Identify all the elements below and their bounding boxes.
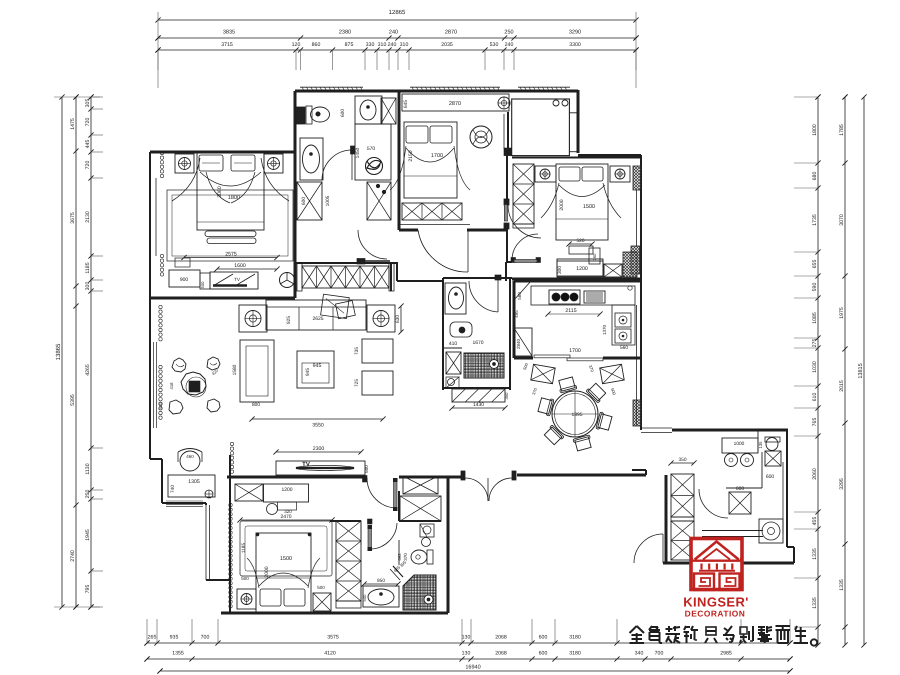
- svg-text:2060: 2060: [812, 468, 818, 480]
- svg-text:2985: 2985: [720, 651, 732, 657]
- svg-text:TV: TV: [234, 277, 241, 282]
- svg-text:3290: 3290: [569, 30, 581, 36]
- svg-text:1670: 1670: [472, 340, 483, 346]
- svg-text:350: 350: [678, 457, 686, 463]
- svg-text:310: 310: [400, 42, 409, 48]
- svg-text:305: 305: [85, 99, 91, 108]
- svg-text:TV: TV: [302, 461, 310, 468]
- svg-text:1800: 1800: [812, 124, 818, 136]
- svg-text:540: 540: [362, 594, 367, 602]
- svg-text:1130: 1130: [85, 463, 91, 474]
- svg-text:3550: 3550: [312, 423, 324, 429]
- svg-text:945: 945: [305, 368, 311, 376]
- svg-text:795: 795: [85, 585, 91, 594]
- svg-text:12865: 12865: [389, 9, 406, 16]
- svg-text:945: 945: [313, 363, 322, 369]
- svg-text:250: 250: [504, 30, 513, 36]
- svg-text:1700: 1700: [569, 348, 581, 354]
- svg-text:2870: 2870: [449, 101, 461, 107]
- svg-text:2035: 2035: [441, 42, 453, 48]
- svg-text:2068: 2068: [495, 635, 507, 641]
- svg-text:240: 240: [505, 42, 514, 48]
- svg-text:275: 275: [812, 339, 818, 348]
- svg-text:610: 610: [812, 393, 818, 402]
- svg-text:600: 600: [340, 109, 346, 117]
- svg-text:2740: 2740: [70, 550, 76, 562]
- svg-text:130: 130: [462, 635, 471, 641]
- svg-text:135: 135: [758, 441, 763, 449]
- svg-text:DECORATION: DECORATION: [685, 609, 746, 619]
- svg-text:330: 330: [366, 42, 375, 48]
- svg-text:1185: 1185: [241, 543, 247, 554]
- svg-text:693: 693: [397, 553, 402, 561]
- svg-text:130: 130: [462, 651, 471, 657]
- svg-text:2300: 2300: [313, 446, 325, 452]
- svg-text:4265: 4265: [85, 364, 91, 376]
- svg-text:1305: 1305: [188, 479, 200, 485]
- svg-text:1785: 1785: [839, 124, 845, 136]
- svg-text:950: 950: [377, 578, 385, 584]
- svg-text:5395: 5395: [70, 394, 76, 406]
- svg-text:1500: 1500: [583, 204, 595, 210]
- svg-text:1975: 1975: [839, 307, 845, 319]
- svg-text:2115: 2115: [565, 308, 576, 314]
- svg-text:3180: 3180: [569, 635, 581, 641]
- svg-text:3300: 3300: [569, 42, 581, 48]
- svg-text:2150: 2150: [408, 150, 414, 161]
- svg-text:1335: 1335: [812, 548, 818, 560]
- svg-text:500: 500: [200, 281, 205, 288]
- svg-text:2380: 2380: [339, 30, 351, 36]
- svg-text:1370: 1370: [602, 324, 607, 335]
- svg-text:860: 860: [312, 42, 321, 48]
- svg-text:1335: 1335: [812, 597, 818, 609]
- svg-text:1085: 1085: [812, 312, 818, 324]
- svg-text:265: 265: [148, 635, 157, 641]
- svg-text:735: 735: [354, 347, 360, 355]
- svg-text:3575: 3575: [327, 635, 339, 641]
- svg-text:3295: 3295: [839, 478, 845, 490]
- svg-text:1945: 1945: [85, 529, 91, 541]
- svg-text:1500: 1500: [280, 556, 292, 562]
- svg-text:240: 240: [388, 42, 397, 48]
- svg-text:1200: 1200: [281, 487, 292, 493]
- svg-text:630: 630: [395, 315, 401, 323]
- svg-text:520: 520: [576, 238, 584, 244]
- svg-text:720: 720: [85, 118, 91, 127]
- svg-text:720: 720: [85, 161, 91, 170]
- svg-text:600: 600: [539, 635, 548, 641]
- svg-text:520: 520: [158, 402, 163, 410]
- svg-text:655: 655: [812, 260, 818, 269]
- svg-text:2470: 2470: [280, 514, 291, 520]
- svg-text:418: 418: [169, 382, 174, 390]
- svg-text:13865: 13865: [55, 343, 62, 360]
- svg-text:350: 350: [504, 392, 509, 400]
- svg-text:725: 725: [354, 379, 360, 387]
- svg-text:1185: 1185: [85, 262, 91, 273]
- svg-text:1735: 1735: [812, 214, 818, 226]
- svg-text:1005: 1005: [325, 195, 331, 206]
- svg-text:1355: 1355: [172, 651, 184, 657]
- svg-text:2870: 2870: [445, 30, 457, 36]
- svg-text:3675: 3675: [70, 212, 76, 224]
- svg-text:580: 580: [517, 292, 522, 300]
- svg-text:1430: 1430: [473, 402, 484, 408]
- svg-text:570: 570: [367, 146, 376, 152]
- svg-text:460: 460: [186, 454, 194, 459]
- svg-text:2015: 2015: [839, 380, 845, 392]
- svg-text:445: 445: [85, 140, 91, 149]
- svg-text:3180: 3180: [569, 651, 581, 657]
- svg-text:1200: 1200: [576, 266, 588, 272]
- svg-text:4120: 4120: [324, 651, 336, 657]
- svg-text:1395: 1395: [571, 412, 582, 418]
- svg-text:250: 250: [85, 490, 91, 499]
- svg-text:740: 740: [170, 485, 176, 493]
- svg-text:1580: 1580: [232, 364, 238, 375]
- svg-text:1800: 1800: [228, 195, 240, 201]
- svg-text:1450: 1450: [355, 147, 361, 158]
- svg-text:765: 765: [812, 418, 818, 427]
- svg-text:340: 340: [635, 651, 644, 657]
- svg-text:1700: 1700: [431, 153, 443, 159]
- svg-text:1000: 1000: [734, 441, 745, 447]
- svg-text:3060: 3060: [217, 186, 223, 198]
- svg-text:900: 900: [180, 277, 189, 283]
- svg-text:600: 600: [364, 465, 369, 473]
- svg-text:875: 875: [345, 42, 354, 48]
- svg-text:600: 600: [766, 474, 775, 480]
- svg-text:3070: 3070: [839, 214, 845, 226]
- svg-text:1600: 1600: [234, 263, 246, 269]
- svg-text:2625: 2625: [312, 316, 323, 322]
- svg-text:300: 300: [557, 266, 563, 274]
- svg-text:495: 495: [514, 310, 519, 318]
- svg-text:560: 560: [620, 345, 628, 351]
- svg-text:310: 310: [378, 42, 387, 48]
- svg-text:500: 500: [241, 576, 249, 581]
- svg-text:3835: 3835: [223, 30, 235, 36]
- svg-text:600: 600: [539, 651, 548, 657]
- svg-text:KINGSER': KINGSER': [683, 595, 749, 610]
- svg-text:680: 680: [812, 172, 818, 181]
- svg-text:590: 590: [812, 283, 818, 292]
- svg-text:800: 800: [252, 402, 260, 408]
- svg-text:700: 700: [201, 635, 210, 641]
- svg-text:700: 700: [655, 651, 664, 657]
- svg-text:500: 500: [317, 585, 325, 590]
- svg-text:120: 120: [292, 42, 301, 48]
- svg-text:2000: 2000: [559, 199, 565, 210]
- svg-text:2068: 2068: [495, 651, 507, 657]
- svg-text:2130: 2130: [85, 211, 91, 223]
- svg-text:925: 925: [286, 316, 292, 324]
- svg-text:2000: 2000: [264, 566, 270, 577]
- svg-text:1475: 1475: [70, 118, 76, 130]
- svg-text:600: 600: [736, 486, 745, 492]
- svg-text:13815: 13815: [858, 363, 864, 378]
- svg-text:600: 600: [301, 197, 307, 205]
- svg-text:2575: 2575: [225, 252, 237, 258]
- svg-text:935: 935: [170, 635, 179, 641]
- svg-text:410: 410: [449, 341, 458, 347]
- svg-text:530: 530: [490, 42, 499, 48]
- svg-text:2840: 2840: [516, 338, 521, 349]
- svg-text:1335: 1335: [839, 579, 845, 591]
- svg-text:16940: 16940: [465, 665, 480, 671]
- svg-text:3715: 3715: [221, 42, 233, 48]
- svg-text:370: 370: [403, 553, 408, 561]
- svg-text:1030: 1030: [812, 361, 818, 373]
- svg-text:455: 455: [812, 517, 818, 526]
- svg-text:240: 240: [389, 30, 398, 36]
- svg-text:645: 645: [403, 100, 409, 108]
- svg-text:300: 300: [85, 282, 91, 291]
